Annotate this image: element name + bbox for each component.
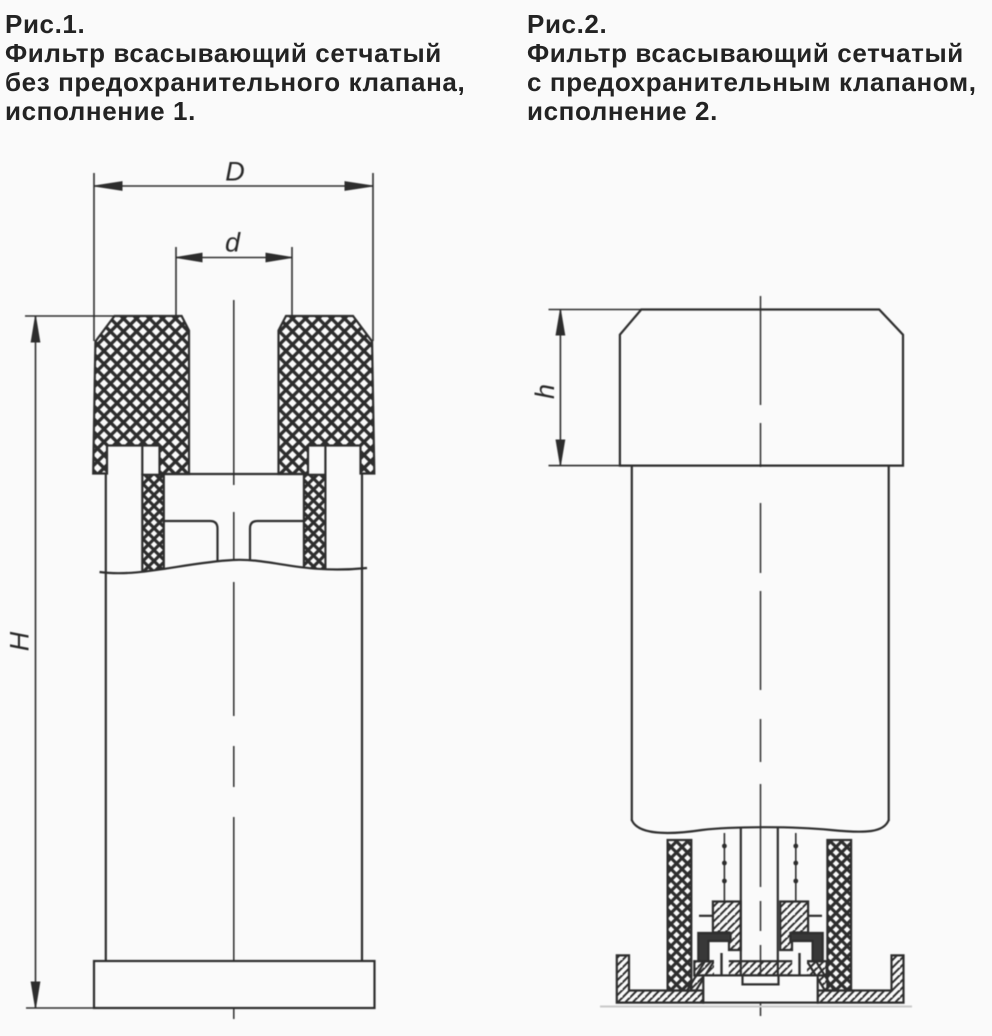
svg-text:d: d xyxy=(225,228,241,258)
svg-text:H: H xyxy=(5,631,35,651)
svg-text:D: D xyxy=(225,157,245,187)
svg-text:h: h xyxy=(530,384,560,399)
